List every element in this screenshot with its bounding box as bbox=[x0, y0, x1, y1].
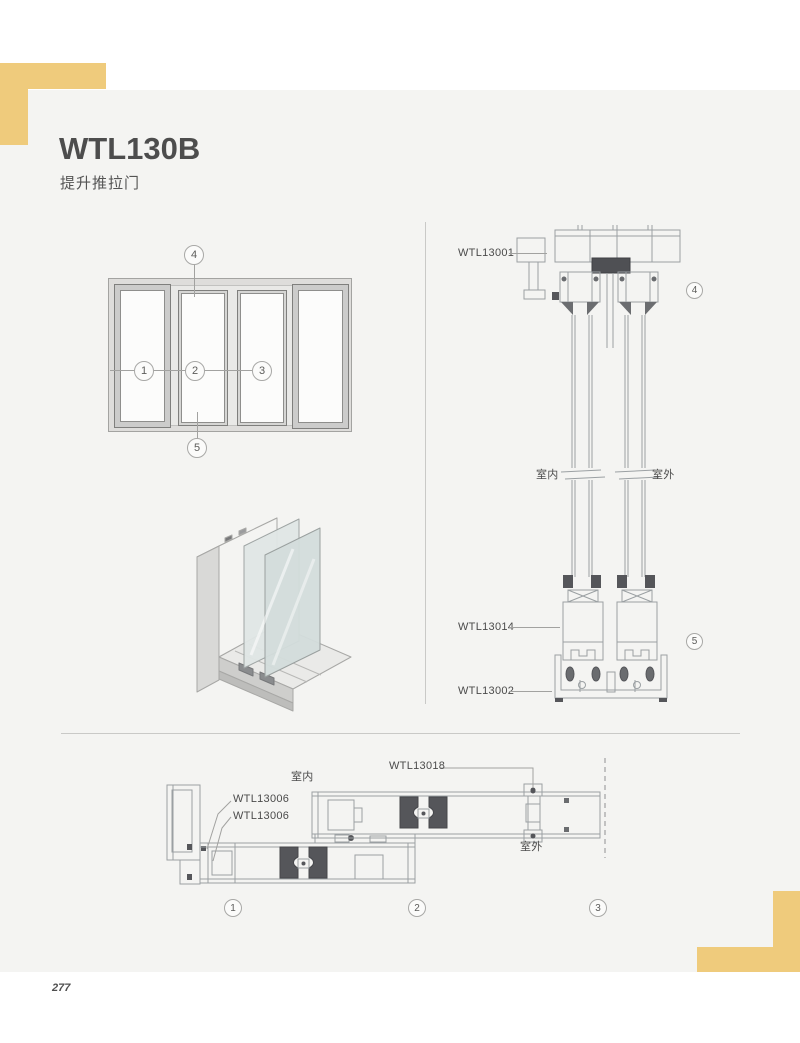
callout-2-number: 2 bbox=[192, 365, 198, 377]
label-wtl13006-1: WTL13006 bbox=[233, 793, 289, 805]
door-panel-3-glass bbox=[240, 293, 284, 423]
door-panel-4 bbox=[292, 284, 349, 429]
door-panel-4-glass bbox=[298, 290, 343, 423]
door-panel-2 bbox=[178, 290, 228, 426]
vertical-divider bbox=[425, 222, 426, 704]
door-panel-1-glass bbox=[120, 290, 165, 422]
profile-3d-render bbox=[185, 505, 390, 715]
door-panel-1 bbox=[114, 284, 171, 428]
label-outdoor-vertical: 室外 bbox=[652, 466, 675, 482]
door-elevation-diagram bbox=[108, 278, 352, 432]
horizontal-divider bbox=[61, 733, 740, 734]
callout-4-number: 4 bbox=[191, 249, 197, 261]
label-indoor-horizontal: 室内 bbox=[291, 768, 314, 784]
callout-3: 3 bbox=[252, 361, 272, 381]
label-wtl13002: WTL13002 bbox=[458, 685, 514, 697]
callout-2-section-number: 2 bbox=[414, 903, 420, 914]
vertical-section-drawing bbox=[430, 222, 730, 714]
callout-1: 1 bbox=[134, 361, 154, 381]
callout-5-elevation: 5 bbox=[187, 438, 207, 458]
label-outdoor-horizontal: 室外 bbox=[520, 838, 543, 854]
callout-5-section: 5 bbox=[686, 633, 703, 650]
callout-2-section: 2 bbox=[408, 899, 426, 917]
callout-5-number: 5 bbox=[194, 442, 200, 454]
corner-accent-bottom-right-horizontal bbox=[697, 947, 800, 972]
label-wtl13001: WTL13001 bbox=[458, 247, 514, 259]
horizontal-section-drawing bbox=[160, 752, 620, 892]
callout-4-section: 4 bbox=[686, 282, 703, 299]
door-panel-2-glass bbox=[181, 293, 225, 423]
label-wtl13018: WTL13018 bbox=[389, 760, 445, 772]
leader-wtl13001 bbox=[509, 253, 547, 254]
callout-5-section-number: 5 bbox=[692, 636, 698, 647]
door-panel-3 bbox=[237, 290, 287, 426]
callout-4-section-number: 4 bbox=[692, 285, 698, 296]
label-wtl13006-2: WTL13006 bbox=[233, 810, 289, 822]
elevation-leader-horizontal bbox=[110, 370, 252, 371]
page-number: 277 bbox=[52, 982, 70, 994]
callout-1-number: 1 bbox=[141, 365, 147, 377]
label-indoor-vertical: 室内 bbox=[536, 466, 559, 482]
callout-4-elevation: 4 bbox=[184, 245, 204, 265]
callout-3-number: 3 bbox=[259, 365, 265, 377]
callout-3-section: 3 bbox=[589, 899, 607, 917]
page-subtitle: 提升推拉门 bbox=[60, 172, 140, 193]
corner-accent-top-left-vertical bbox=[0, 63, 28, 145]
callout-1-section: 1 bbox=[224, 899, 242, 917]
callout-2: 2 bbox=[185, 361, 205, 381]
elevation-leader-callout4 bbox=[194, 264, 195, 297]
leader-wtl13014 bbox=[509, 627, 560, 628]
callout-3-section-number: 3 bbox=[595, 903, 601, 914]
leader-wtl13002 bbox=[509, 691, 552, 692]
callout-1-section-number: 1 bbox=[230, 903, 236, 914]
page-title: WTL130B bbox=[59, 131, 200, 167]
elevation-leader-callout5 bbox=[197, 412, 198, 440]
label-wtl13014: WTL13014 bbox=[458, 621, 514, 633]
